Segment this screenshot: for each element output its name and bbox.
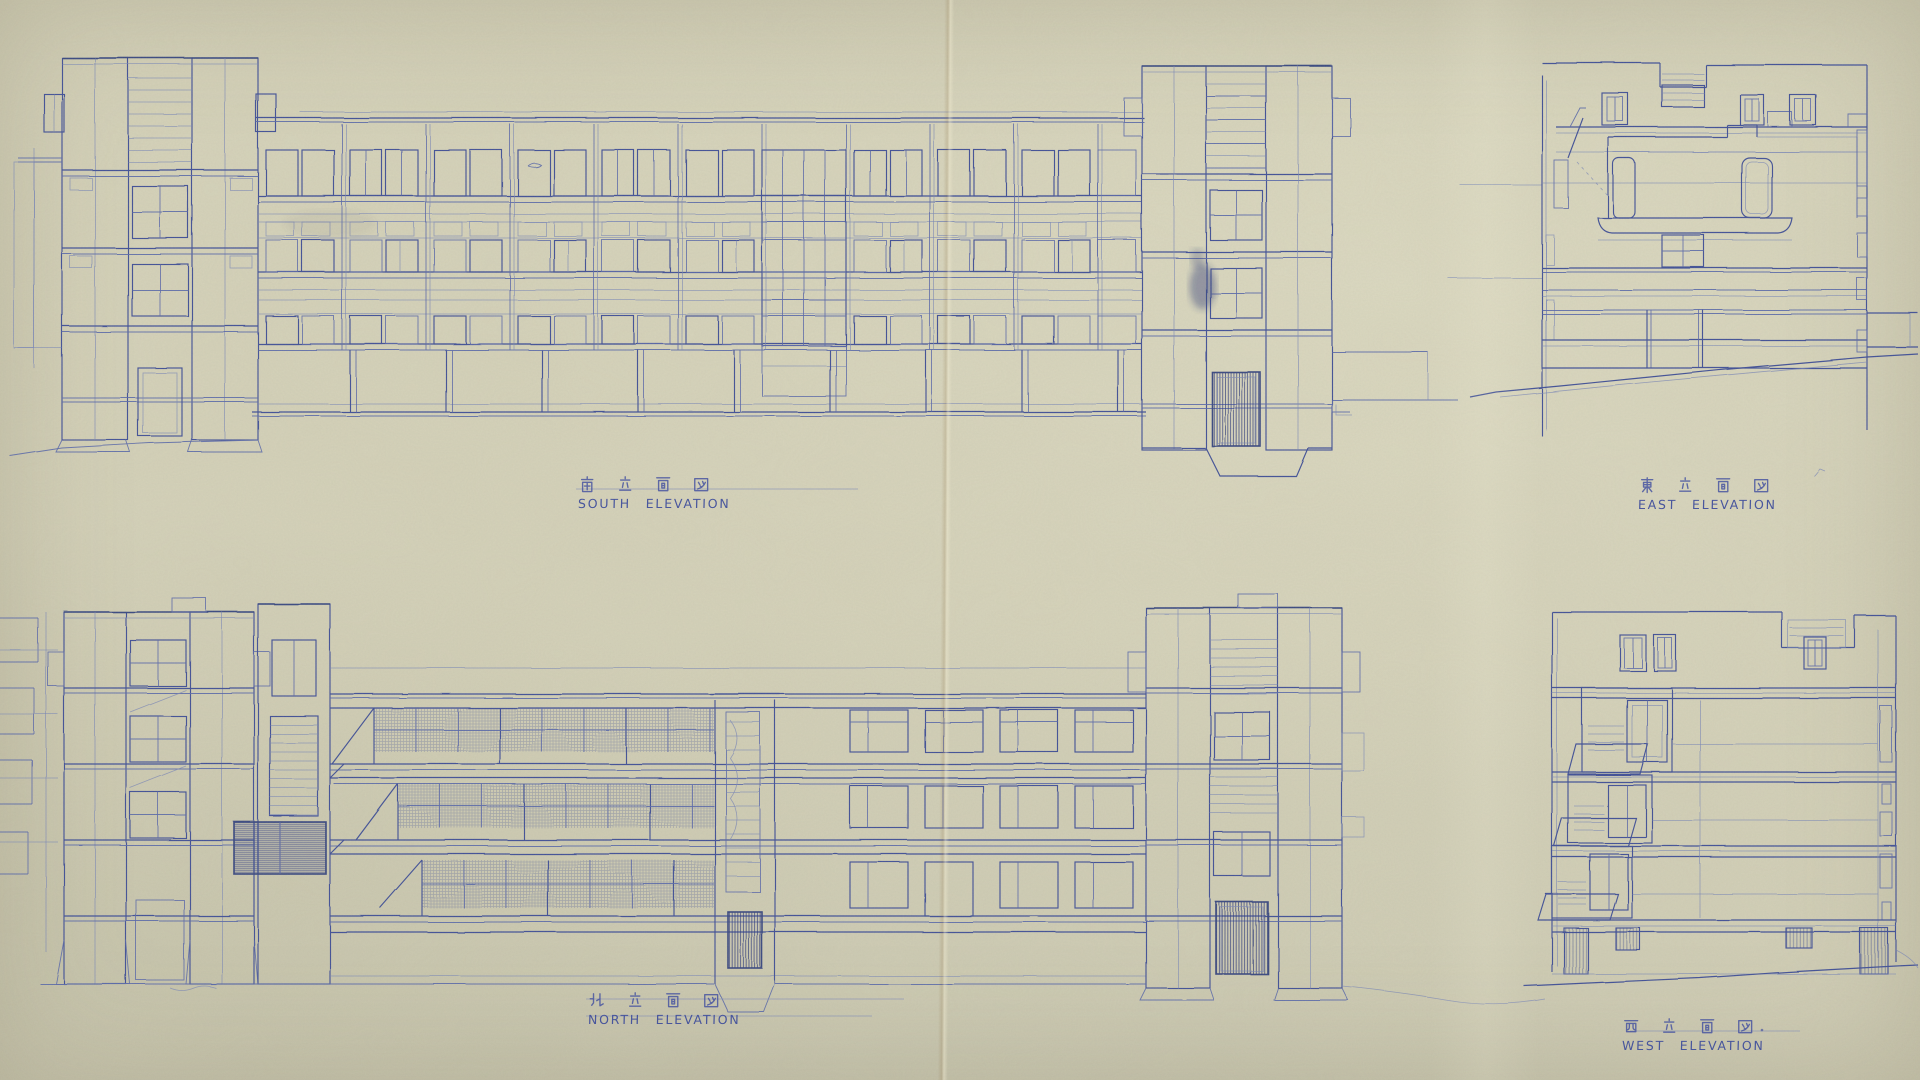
- elevation-drawings: [0, 0, 1920, 1080]
- blueprint-sheet: 南立面図 SOUTH ELEVATION 東立面図 EAST ELEVATION…: [0, 0, 1920, 1080]
- paper-grain-light: [0, 0, 1920, 1080]
